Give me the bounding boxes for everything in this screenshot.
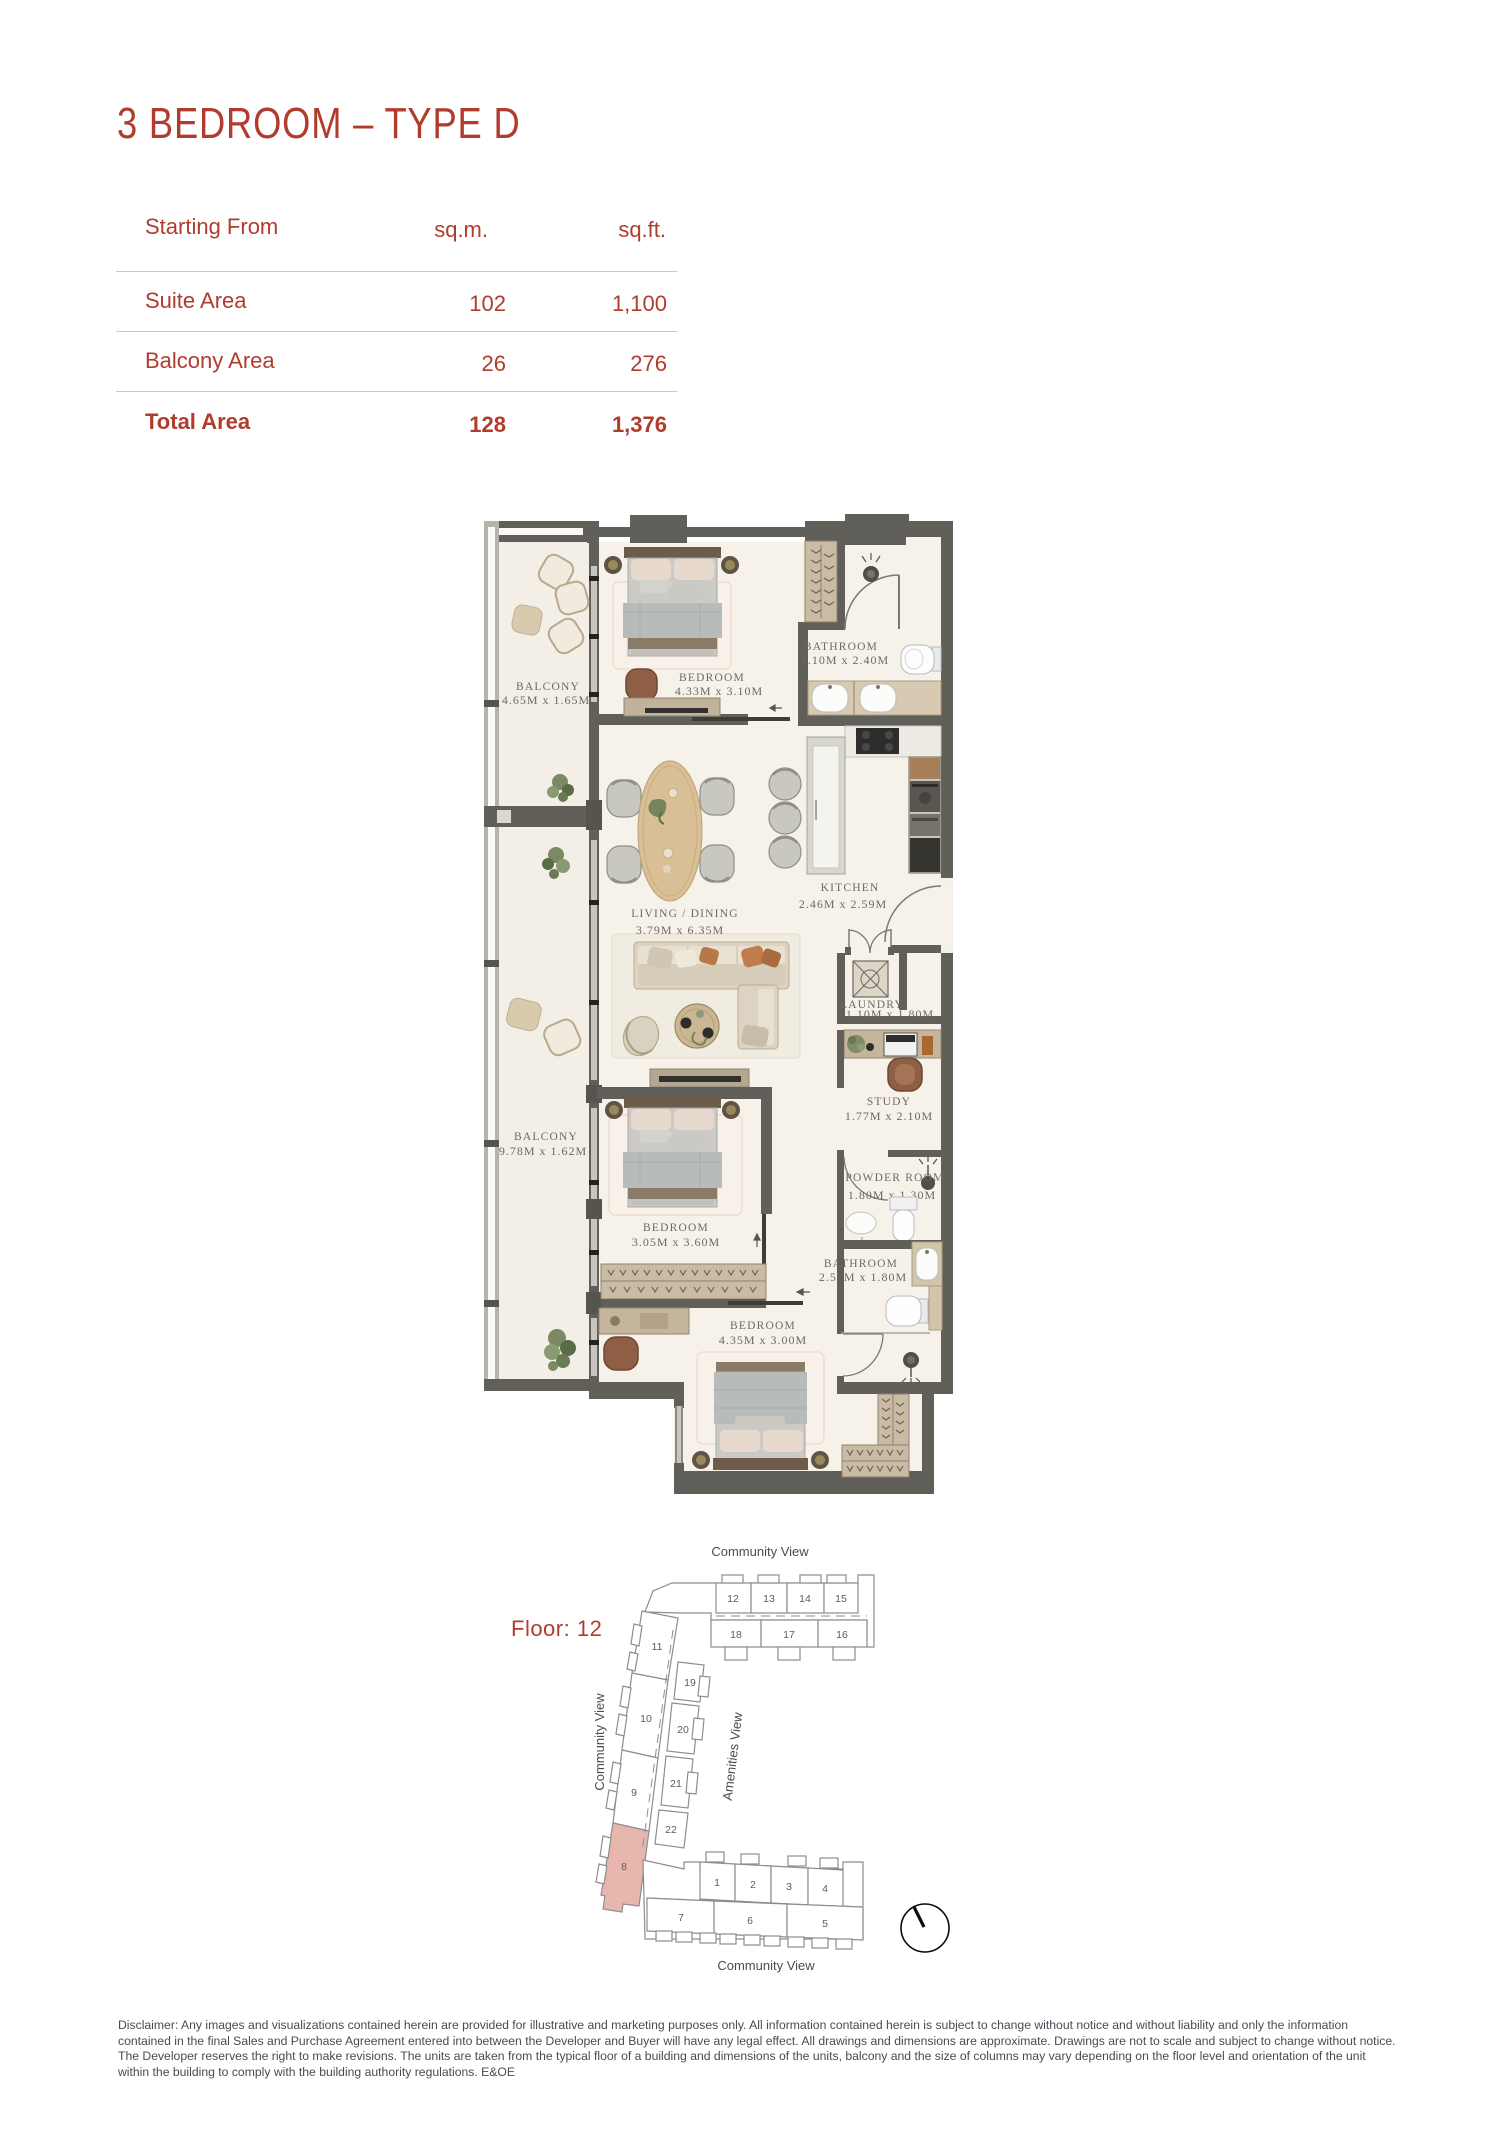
svg-text:13: 13: [763, 1593, 775, 1605]
svg-text:Amenities View: Amenities View: [720, 1711, 746, 1801]
svg-text:3: 3: [786, 1881, 792, 1893]
svg-text:2: 2: [750, 1879, 756, 1891]
svg-text:LIVING / DINING: LIVING / DINING: [631, 908, 738, 920]
svg-text:4.35M x 3.00M: 4.35M x 3.00M: [719, 1333, 807, 1347]
svg-text:POWDER ROOM: POWDER ROOM: [845, 1172, 944, 1184]
svg-text:9.78M x 1.62M: 9.78M x 1.62M: [499, 1144, 587, 1158]
svg-text:5: 5: [822, 1918, 828, 1930]
svg-text:BALCONY: BALCONY: [514, 1131, 578, 1143]
svg-text:20: 20: [677, 1724, 689, 1736]
svg-text:4.65M x 1.65M: 4.65M x 1.65M: [502, 693, 590, 707]
svg-text:3.10M x 2.40M: 3.10M x 2.40M: [801, 653, 889, 667]
svg-text:BEDROOM: BEDROOM: [679, 672, 745, 684]
svg-text:4.33M x 3.10M: 4.33M x 3.10M: [675, 684, 763, 698]
svg-text:17: 17: [783, 1629, 795, 1641]
svg-text:3.05M x 3.60M: 3.05M x 3.60M: [632, 1235, 720, 1249]
svg-text:4: 4: [822, 1883, 828, 1895]
svg-text:1.10M x 1.80M: 1.10M x 1.80M: [846, 1007, 934, 1021]
svg-text:19: 19: [684, 1677, 696, 1689]
svg-text:Community View: Community View: [711, 1544, 809, 1559]
svg-text:1: 1: [714, 1877, 720, 1889]
svg-text:BATHROOM: BATHROOM: [824, 1258, 898, 1270]
svg-text:1.77M x 2.10M: 1.77M x 2.10M: [845, 1109, 933, 1123]
svg-text:9: 9: [631, 1787, 637, 1799]
svg-text:BEDROOM: BEDROOM: [643, 1222, 709, 1234]
svg-text:14: 14: [799, 1593, 811, 1605]
svg-text:STUDY: STUDY: [867, 1096, 911, 1108]
svg-text:16: 16: [836, 1629, 848, 1641]
svg-text:15: 15: [835, 1593, 847, 1605]
svg-text:12: 12: [727, 1593, 739, 1605]
svg-text:7: 7: [678, 1912, 684, 1924]
svg-text:22: 22: [665, 1824, 677, 1836]
svg-text:BALCONY: BALCONY: [516, 681, 580, 693]
svg-text:BEDROOM: BEDROOM: [730, 1320, 796, 1332]
svg-text:Community View: Community View: [717, 1958, 815, 1973]
svg-text:KITCHEN: KITCHEN: [821, 882, 880, 894]
svg-text:18: 18: [730, 1629, 742, 1641]
svg-text:10: 10: [640, 1713, 652, 1725]
svg-text:21: 21: [670, 1778, 682, 1790]
svg-text:2.46M x 2.59M: 2.46M x 2.59M: [799, 897, 887, 911]
svg-text:Community View: Community View: [592, 1693, 607, 1791]
svg-text:3.79M x 6.35M: 3.79M x 6.35M: [636, 923, 724, 937]
svg-text:8: 8: [621, 1861, 627, 1873]
svg-text:BATHROOM: BATHROOM: [804, 641, 878, 653]
svg-text:11: 11: [652, 1641, 663, 1653]
svg-text:2.55M x 1.80M: 2.55M x 1.80M: [819, 1270, 907, 1284]
svg-text:6: 6: [747, 1915, 753, 1927]
